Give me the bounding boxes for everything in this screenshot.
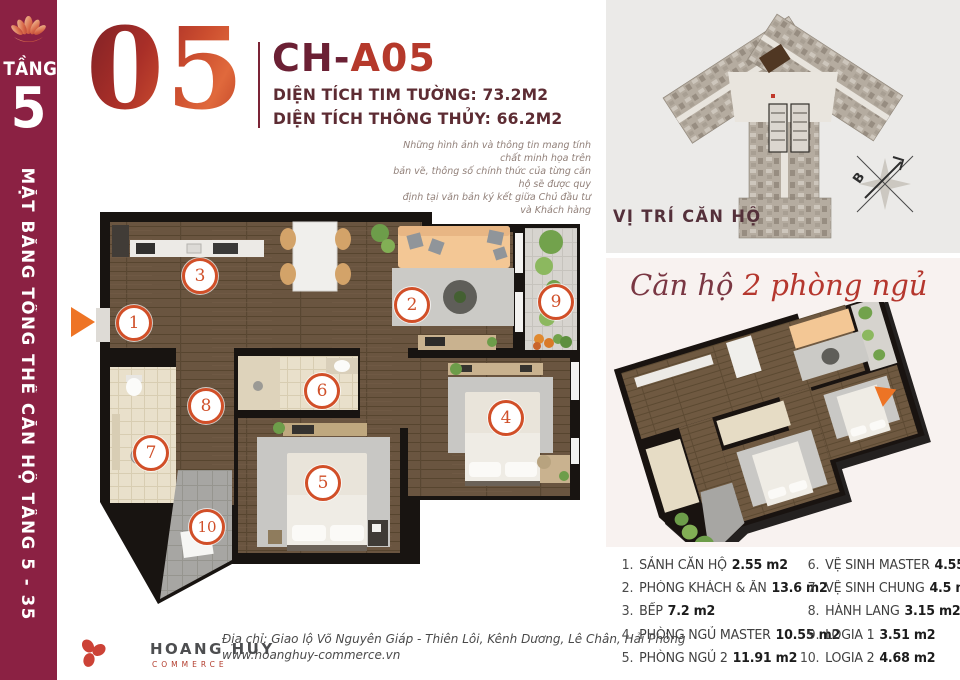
- legend-name: VỆ SINH MASTER: [825, 558, 929, 573]
- unit-3d-render: [612, 302, 942, 542]
- legend-item: 3.BẾP7.2 m2: [612, 604, 791, 627]
- legend-name: HÀNH LANG: [825, 604, 899, 619]
- legend-num: 8.: [798, 604, 819, 619]
- legend-num: 7.: [798, 581, 819, 596]
- legend-area: 4.55 m2: [934, 558, 960, 573]
- legend-item: 9.LOGIA 13.51 m2: [798, 628, 953, 651]
- legend-name: LOGIA 1: [825, 628, 874, 643]
- legend-name: LOGIA 2: [825, 651, 874, 666]
- legend-item: 7.VỆ SINH CHUNG4.5 m2: [798, 581, 953, 604]
- legend-num: 1.: [612, 558, 633, 573]
- disclaimer-line: bản vẽ, thông số chính thức của từng căn…: [393, 165, 591, 191]
- legend-num: 6.: [798, 558, 819, 573]
- header-divider: [258, 42, 260, 128]
- footer-address: Địa chỉ: Giao lộ Võ Nguyên Giáp - Thiên …: [222, 631, 686, 663]
- legend-right-column: 6.VỆ SINH MASTER4.55 m2 7.VỆ SINH CHUNG4…: [798, 558, 958, 674]
- floor-plan: 1 2 3 4 5 6 7 8 9 10: [92, 200, 592, 615]
- room-marker-4: 4: [488, 400, 524, 436]
- room-marker-3: 3: [182, 258, 218, 294]
- legend-area: 7.2 m2: [668, 604, 715, 619]
- legend-num: 2.: [612, 581, 633, 596]
- unit-code-suffix: A05: [350, 36, 435, 80]
- legend-item: 10.LOGIA 24.68 m2: [798, 651, 953, 674]
- unit-number-big: 05: [86, 14, 246, 126]
- unit-title-suffix: 2 phòng ngủ: [734, 268, 928, 302]
- legend-item: 6.VỆ SINH MASTER4.55 m2: [798, 558, 953, 581]
- legend-item: 1.SẢNH CĂN HỘ2.55 m2: [612, 558, 791, 581]
- room-marker-9: 9: [538, 284, 574, 320]
- legend-num: 3.: [612, 604, 633, 619]
- hoanghuy-logo-icon: [76, 636, 110, 670]
- room-marker-7: 7: [133, 435, 169, 471]
- sidebar: TẦNG 5 MẶT BẰNG TỔNG THỂ CĂN HỘ TẦNG 5 -…: [0, 0, 57, 680]
- compass-icon: B: [850, 156, 913, 212]
- legend-area: 3.51 m2: [879, 628, 935, 643]
- legend-name: BẾP: [639, 604, 663, 619]
- legend-name: SẢNH CĂN HỘ: [639, 558, 727, 573]
- website-link[interactable]: www.hoanghuy-commerce.vn: [222, 647, 686, 663]
- room-marker-8: 8: [188, 388, 224, 424]
- sidebar-vertical-title: MẶT BẰNG TỔNG THỂ CĂN HỘ TẦNG 5 - 35: [17, 168, 37, 621]
- area-net: DIỆN TÍCH THÔNG THỦY: 66.2M2: [273, 109, 562, 128]
- legend-area: 2.55 m2: [732, 558, 788, 573]
- address-line: Địa chỉ: Giao lộ Võ Nguyên Giáp - Thiên …: [222, 631, 686, 647]
- unit-title: Căn hộ 2 phòng ngủ: [630, 268, 927, 302]
- unit-overview-panel: Căn hộ 2 phòng ngủ: [606, 258, 960, 547]
- legend-name: VỆ SINH CHUNG: [825, 581, 924, 596]
- room-marker-1: 1: [116, 305, 152, 341]
- area-gross: DIỆN TÍCH TIM TƯỜNG: 73.2M2: [273, 85, 548, 104]
- lotus-icon: [11, 12, 46, 46]
- site-plan-panel: B VỊ TRÍ CĂN HỘ: [606, 0, 960, 253]
- legend-area: 3.15 m2: [904, 604, 960, 619]
- legend-area: 4.5 m2: [929, 581, 960, 596]
- brochure-page: TẦNG 5 MẶT BẰNG TỔNG THỂ CĂN HỘ TẦNG 5 -…: [0, 0, 960, 680]
- legend-item: 8.HÀNH LANG3.15 m2: [798, 604, 953, 627]
- legend-num: 9.: [798, 628, 819, 643]
- disclaimer-line: Những hình ảnh và thông tin mang tính ch…: [393, 139, 591, 165]
- legend-num: 10.: [798, 651, 819, 666]
- site-plan-caption: VỊ TRÍ CĂN HỘ: [613, 207, 761, 227]
- legend-area: 4.68 m2: [879, 651, 935, 666]
- unit-code-prefix: CH-: [272, 36, 350, 80]
- unit-code: CH-A05: [272, 36, 436, 80]
- unit-title-prefix: Căn hộ: [630, 268, 734, 302]
- legend-name: PHÒNG KHÁCH & ĂN: [639, 581, 766, 596]
- legend-area: 11.91 m2: [733, 651, 798, 666]
- room-marker-5: 5: [305, 465, 341, 501]
- floor-number: 5: [2, 76, 54, 141]
- legend-item: 2.PHÒNG KHÁCH & ĂN13.6 m2: [612, 581, 791, 604]
- room-marker-6: 6: [304, 373, 340, 409]
- room-marker-10: 10: [189, 509, 225, 545]
- room-marker-2: 2: [394, 287, 430, 323]
